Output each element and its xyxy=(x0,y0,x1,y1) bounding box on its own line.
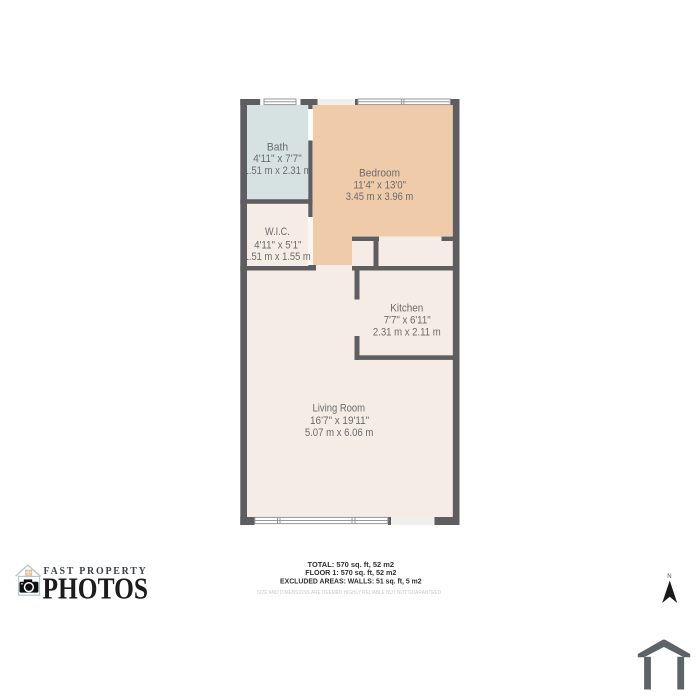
svg-text:2.31 m x 2.11 m: 2.31 m x 2.11 m xyxy=(373,326,441,338)
svg-text:7'7" x 6'11": 7'7" x 6'11" xyxy=(384,315,431,327)
svg-text:1.51 m x 1.55 m: 1.51 m x 1.55 m xyxy=(244,251,311,263)
svg-text:3.45 m x 3.96 m: 3.45 m x 3.96 m xyxy=(346,191,414,203)
svg-text:4'11" x 5'1": 4'11" x 5'1" xyxy=(254,239,301,251)
svg-text:Bedroom: Bedroom xyxy=(359,168,400,180)
svg-text:N: N xyxy=(667,574,671,580)
svg-text:Kitchen: Kitchen xyxy=(390,302,423,314)
svg-text:11'4" x 13'0": 11'4" x 13'0" xyxy=(354,179,407,191)
svg-text:5.07 m x 6.06 m: 5.07 m x 6.06 m xyxy=(305,427,374,439)
svg-text:16'7" x 19'11": 16'7" x 19'11" xyxy=(310,415,369,427)
svg-text:SIZE AND DIMENSIONS ARE DEEMED: SIZE AND DIMENSIONS ARE DEEMED HIGHLY RE… xyxy=(257,590,441,596)
svg-text:Bath: Bath xyxy=(267,141,288,153)
svg-text:W.I.C.: W.I.C. xyxy=(265,226,290,238)
svg-text:PHOTOS: PHOTOS xyxy=(43,571,149,605)
svg-text:1.51 m x 2.31 m: 1.51 m x 2.31 m xyxy=(244,165,312,177)
svg-text:4'11" x 7'7": 4'11" x 7'7" xyxy=(253,153,302,165)
svg-text:Living Room: Living Room xyxy=(313,403,366,415)
svg-text:EXCLUDED AREAS: WALLS: 51 sq.: EXCLUDED AREAS: WALLS: 51 sq. ft, 5 m2 xyxy=(280,577,422,586)
